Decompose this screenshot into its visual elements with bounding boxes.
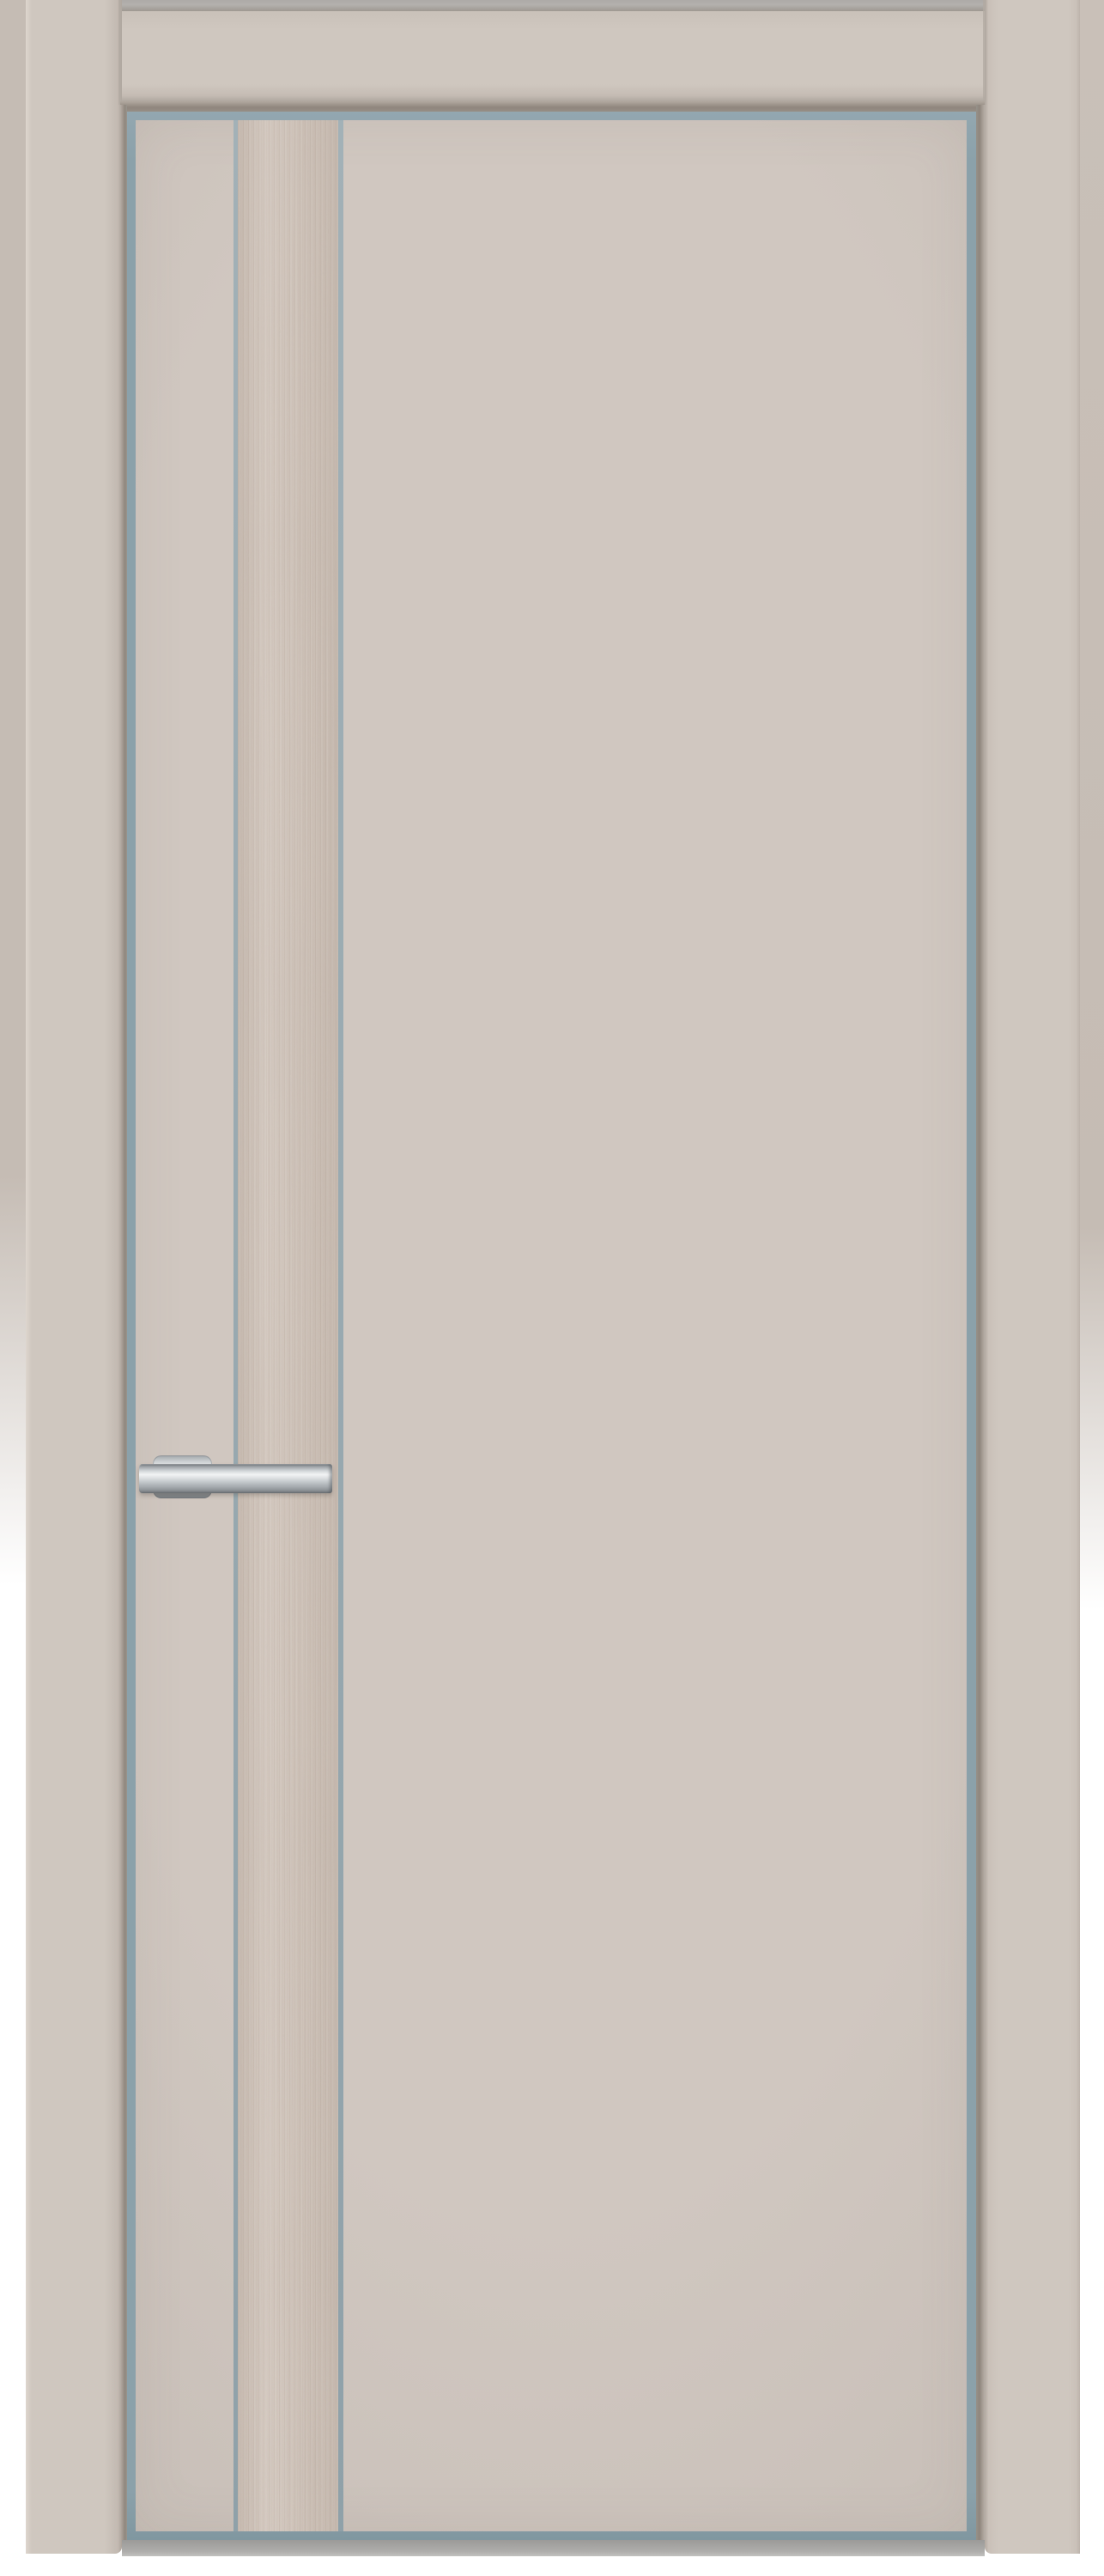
wood-shading-overlay: [238, 120, 338, 2531]
door-product-photo: [0, 0, 1104, 2576]
wood-insert-strip: [238, 120, 338, 2531]
wall-left: [0, 0, 26, 2555]
frame-reveal-top: [120, 101, 985, 112]
frame-joint-left: [118, 0, 122, 105]
door-frame-head-casing: [122, 11, 985, 105]
door-panel: [136, 120, 967, 2531]
door-frame-right-casing: [985, 0, 1080, 2554]
door-frame-left-casing: [26, 0, 122, 2554]
insert-trim-right: [338, 120, 343, 2531]
frame-joint-right: [983, 0, 986, 105]
wall-strip-above-frame: [118, 0, 988, 11]
floor-shadow: [122, 2540, 985, 2556]
frame-reveal-left: [120, 105, 127, 2540]
handle-lever: [139, 1464, 332, 1493]
frame-reveal-right: [976, 105, 985, 2540]
wall-right: [1080, 0, 1104, 2555]
door-handle: [139, 1455, 332, 1499]
